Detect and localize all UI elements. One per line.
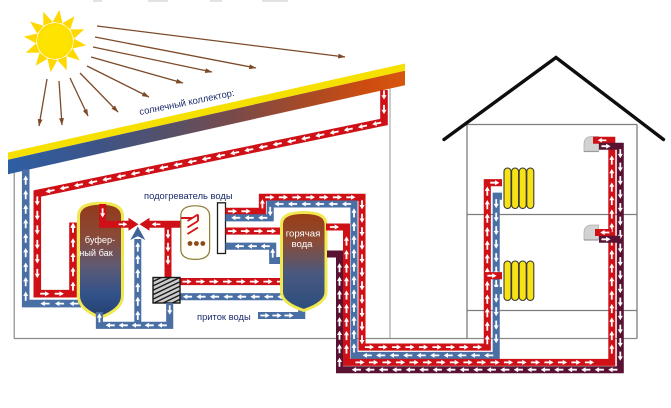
svg-text:приток воды: приток воды: [197, 311, 251, 322]
svg-text:вода: вода: [291, 239, 313, 250]
svg-text:горячая: горячая: [286, 229, 321, 240]
svg-text:буфер-: буфер-: [85, 235, 115, 245]
svg-text:ный бак: ный бак: [79, 248, 114, 258]
svg-text:подогреватель воды: подогреватель воды: [144, 190, 233, 201]
